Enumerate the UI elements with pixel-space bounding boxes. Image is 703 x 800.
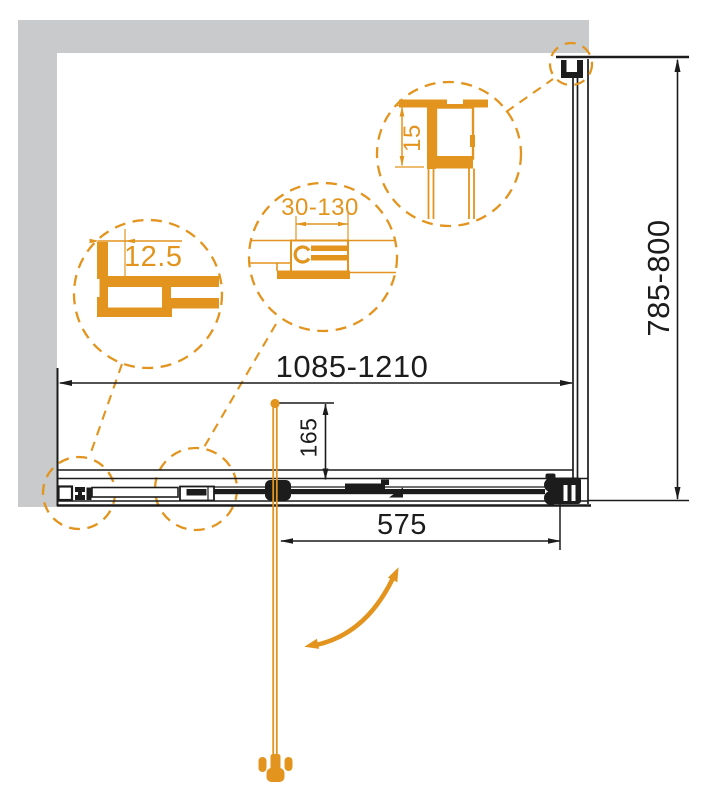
dim-depth-label: 785-800: [644, 208, 674, 348]
swing-arrow: [304, 567, 398, 649]
left-wall-profile-section: [59, 487, 92, 501]
leader-adjustment: [203, 324, 276, 449]
drawing-linework: [0, 0, 703, 800]
detail-top-profile-label: 15: [401, 88, 425, 188]
track-assembly: [57, 470, 591, 506]
door-handle-foot: [259, 754, 293, 782]
detail-wall-profile-label: 12.5: [124, 243, 182, 272]
leader-wall-profile: [90, 364, 122, 455]
dim-width-label: 1085-1210: [252, 351, 452, 382]
door-roller-knob: [265, 480, 291, 501]
dimension-lines: [59, 59, 690, 551]
technical-drawing-canvas: 1085-1210 785-800 575 165 12.5 30-130 15: [0, 0, 703, 800]
door-pivot-dot: [270, 399, 279, 408]
detail-adjustment-label: 30-130: [270, 196, 370, 220]
mid-right-bracket: [345, 480, 403, 498]
mid-profile-section: [180, 487, 214, 501]
dim-door-opening-label: 575: [352, 511, 452, 540]
wall-bracket-top-right: [561, 60, 583, 78]
detail-adjustment-drawing: [250, 213, 396, 279]
leader-top-profile: [506, 79, 553, 112]
right-roller-assembly: [544, 474, 581, 506]
fixed-panel-profile-section: [92, 488, 178, 498]
door-swing-indicator: [259, 399, 399, 782]
dim-handle-offset-label: 165: [298, 388, 321, 488]
